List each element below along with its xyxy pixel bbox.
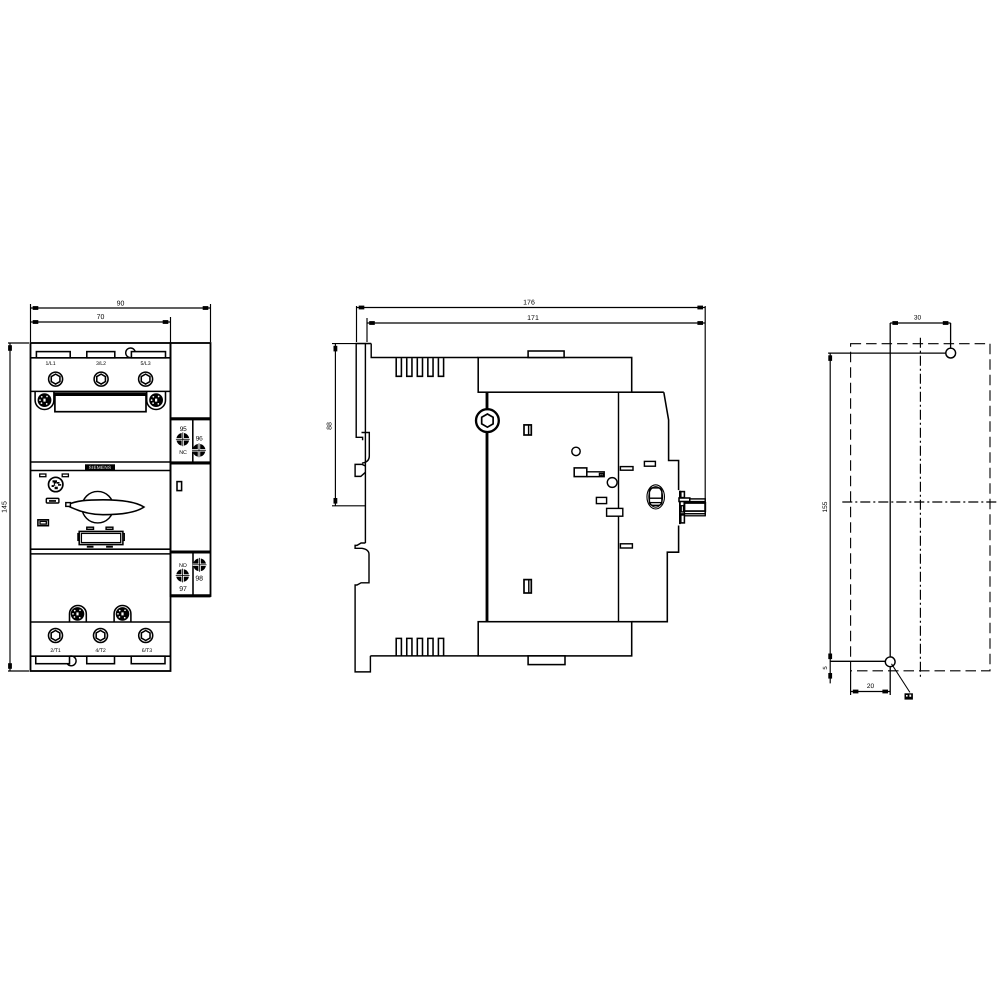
svg-text:NO: NO <box>179 563 187 569</box>
svg-text:145: 145 <box>2 501 9 513</box>
svg-text:97: 97 <box>179 586 187 593</box>
svg-text:70: 70 <box>97 314 105 321</box>
svg-text:30: 30 <box>914 315 922 322</box>
svg-text:98: 98 <box>195 576 203 583</box>
svg-text:88: 88 <box>327 422 334 430</box>
svg-text:96: 96 <box>196 436 203 443</box>
svg-text:5/L3: 5/L3 <box>141 361 151 367</box>
svg-text:4/T2: 4/T2 <box>95 648 105 654</box>
svg-text:171: 171 <box>527 315 539 322</box>
svg-text:NC: NC <box>179 450 187 456</box>
svg-text:155: 155 <box>822 501 829 512</box>
svg-text:176: 176 <box>523 300 535 307</box>
svg-text:95: 95 <box>180 426 187 433</box>
svg-text:SIEMENS: SIEMENS <box>89 465 112 470</box>
svg-text:3/L2: 3/L2 <box>96 361 106 367</box>
svg-text:6/T3: 6/T3 <box>142 648 152 654</box>
svg-text:20: 20 <box>867 683 875 690</box>
svg-text:1/L1: 1/L1 <box>46 361 56 367</box>
svg-text:2/T1: 2/T1 <box>50 648 60 654</box>
svg-text:90: 90 <box>117 301 125 308</box>
